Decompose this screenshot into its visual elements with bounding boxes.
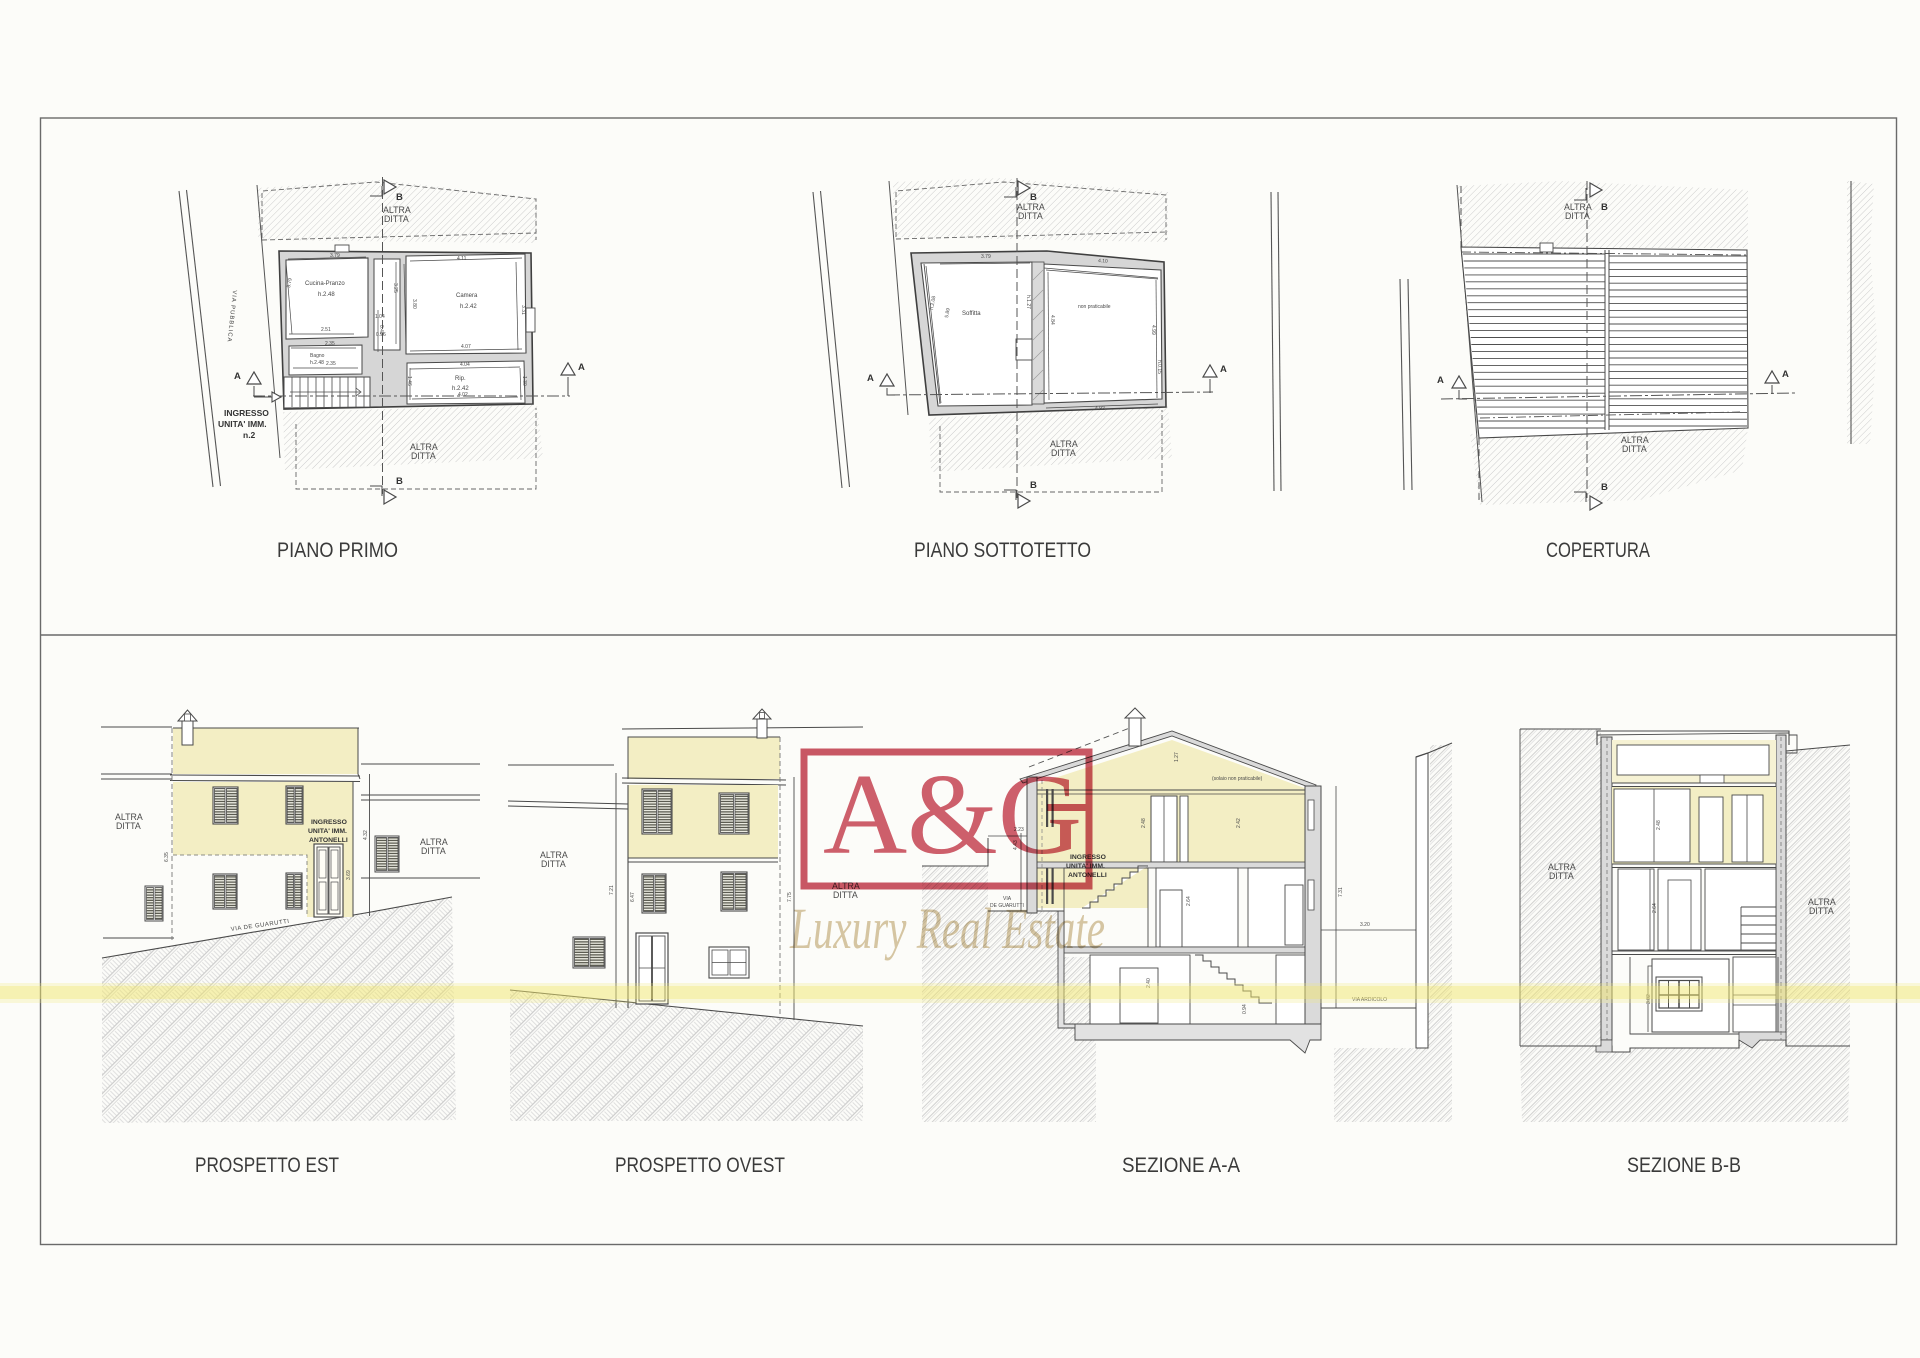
svg-text:3.79: 3.79 — [981, 254, 991, 260]
svg-text:3.80: 3.80 — [411, 299, 417, 309]
svg-text:7.21: 7.21 — [609, 885, 615, 895]
svg-text:DITTA: DITTA — [411, 451, 436, 461]
svg-text:1.46: 1.46 — [406, 376, 412, 386]
svg-text:h.2.48: h.2.48 — [318, 292, 335, 298]
svg-text:A: A — [234, 371, 241, 382]
svg-text:h.1.27: h.1.27 — [1025, 295, 1031, 309]
svg-text:3.20: 3.20 — [1360, 922, 1370, 928]
svg-text:6.35: 6.35 — [164, 852, 170, 862]
svg-text:7.31: 7.31 — [1338, 887, 1344, 897]
svg-text:(solaio non praticabile): (solaio non praticabile) — [1212, 776, 1263, 782]
svg-text:DITTA: DITTA — [1565, 211, 1590, 221]
svg-text:A: A — [1782, 369, 1789, 380]
svg-text:Luxury Real Estate: Luxury Real Estate — [789, 896, 1105, 961]
svg-text:3.31: 3.31 — [520, 305, 526, 315]
svg-text:B: B — [396, 192, 403, 203]
svg-text:n.2: n.2 — [243, 430, 256, 440]
svg-text:DITTA: DITTA — [1018, 211, 1043, 221]
svg-text:3.25: 3.25 — [392, 283, 398, 293]
svg-text:4.07: 4.07 — [461, 344, 471, 350]
svg-text:PROSPETTO EST: PROSPETTO EST — [195, 1154, 339, 1177]
svg-text:SEZIONE A-A: SEZIONE A-A — [1122, 1154, 1240, 1177]
svg-text:A: A — [1220, 364, 1227, 375]
svg-text:2.64: 2.64 — [1652, 903, 1658, 913]
svg-text:6.47: 6.47 — [630, 892, 636, 902]
svg-text:Soffitta: Soffitta — [962, 311, 981, 317]
svg-text:PIANO PRIMO: PIANO PRIMO — [277, 539, 398, 562]
svg-text:B: B — [1601, 202, 1608, 213]
svg-text:Cucina-Pranzo: Cucina-Pranzo — [305, 281, 345, 287]
svg-text:4.02: 4.02 — [458, 392, 468, 398]
svg-text:DITTA: DITTA — [421, 846, 446, 856]
svg-text:B: B — [1030, 480, 1037, 491]
svg-text:0.49: 0.49 — [378, 325, 384, 335]
svg-text:2.64: 2.64 — [1186, 896, 1192, 906]
svg-text:A: A — [578, 362, 585, 373]
svg-text:3.69: 3.69 — [346, 870, 352, 880]
svg-text:DITTA: DITTA — [1051, 448, 1076, 458]
svg-text:B: B — [1601, 482, 1608, 493]
svg-text:ANTONELLI: ANTONELLI — [309, 837, 348, 844]
svg-text:2.42: 2.42 — [1236, 818, 1242, 828]
svg-text:h.2.42: h.2.42 — [460, 304, 477, 310]
svg-text:1.04: 1.04 — [375, 314, 385, 320]
svg-text:UNITA' IMM.: UNITA' IMM. — [308, 828, 347, 835]
svg-text:PIANO SOTTOTETTO: PIANO SOTTOTETTO — [914, 539, 1091, 562]
svg-text:2.48: 2.48 — [1656, 820, 1662, 830]
svg-text:4.84: 4.84 — [1049, 315, 1055, 325]
svg-text:h.2.48: h.2.48 — [310, 360, 324, 366]
svg-text:PROSPETTO OVEST: PROSPETTO OVEST — [615, 1154, 785, 1177]
svg-text:A&G: A&G — [823, 751, 1082, 879]
svg-text:3.79: 3.79 — [330, 253, 340, 259]
svg-text:4.92: 4.92 — [1095, 406, 1105, 412]
svg-text:4.99: 4.99 — [1150, 325, 1156, 335]
svg-text:A: A — [1437, 375, 1444, 386]
svg-text:h.0.15: h.0.15 — [1156, 360, 1162, 374]
svg-text:DITTA: DITTA — [384, 214, 409, 224]
svg-text:DITTA: DITTA — [1549, 871, 1574, 881]
svg-text:4.11: 4.11 — [457, 256, 467, 262]
svg-text:SEZIONE B-B: SEZIONE B-B — [1627, 1154, 1741, 1177]
svg-text:DITTA: DITTA — [541, 859, 566, 869]
svg-text:1.27: 1.27 — [1174, 752, 1180, 762]
svg-text:Rip.: Rip. — [455, 376, 466, 382]
svg-text:Bagno: Bagno — [310, 353, 325, 359]
svg-text:UNITA' IMM.: UNITA' IMM. — [218, 419, 267, 429]
svg-text:0.94: 0.94 — [1242, 1004, 1248, 1014]
svg-text:A: A — [867, 373, 874, 384]
svg-text:2.35: 2.35 — [325, 341, 335, 347]
svg-text:B: B — [396, 476, 403, 487]
svg-text:DITTA: DITTA — [1622, 444, 1647, 454]
svg-text:non praticabile: non praticabile — [1078, 304, 1111, 310]
svg-text:DITTA: DITTA — [1809, 906, 1834, 916]
svg-text:INGRESSO: INGRESSO — [311, 819, 347, 826]
svg-text:4.04: 4.04 — [460, 362, 470, 368]
svg-text:DITTA: DITTA — [116, 821, 141, 831]
svg-text:2.51: 2.51 — [321, 327, 331, 333]
svg-text:Camera: Camera — [456, 293, 478, 299]
svg-text:INGRESSO: INGRESSO — [224, 408, 269, 418]
svg-text:4.10: 4.10 — [1098, 258, 1108, 265]
svg-text:2.48: 2.48 — [1141, 818, 1147, 828]
svg-text:4.32: 4.32 — [363, 830, 369, 840]
svg-text:1.30: 1.30 — [521, 376, 527, 386]
svg-text:2.35: 2.35 — [326, 361, 336, 367]
svg-text:COPERTURA: COPERTURA — [1546, 539, 1650, 562]
